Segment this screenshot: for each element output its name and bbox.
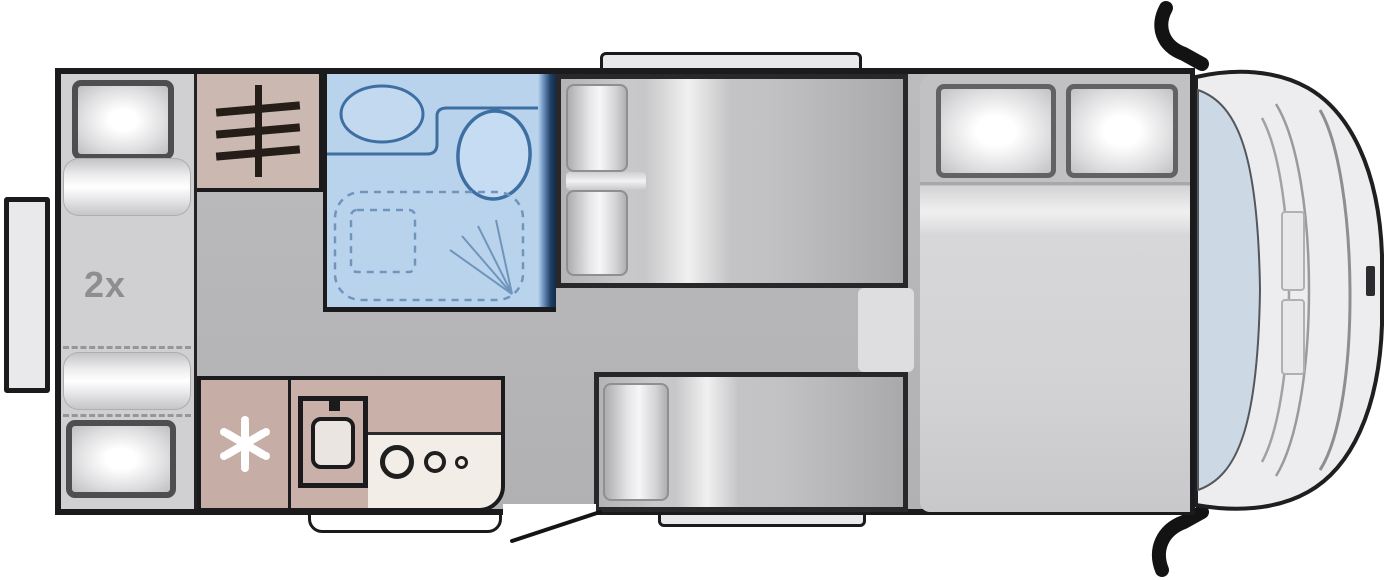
bathroom-fixtures (327, 74, 556, 307)
fold-line (63, 346, 191, 349)
rear-cushion-bottom (63, 352, 191, 410)
double-bed (920, 74, 1190, 512)
bench-surface (675, 377, 739, 507)
mattress-highlight (920, 190, 1190, 234)
entry-door-opening (503, 504, 596, 518)
bathroom (323, 74, 556, 312)
doorway-floor-light (858, 288, 914, 372)
hanger-rail-icon (212, 83, 304, 179)
shower-seat (351, 210, 415, 272)
side-bench (594, 372, 908, 512)
faucet (329, 397, 340, 411)
cab-mirror-bottom-icon (1159, 512, 1202, 570)
rear-pillow-top (72, 80, 174, 160)
cab-mirror-top-icon (1161, 8, 1202, 64)
snowflake-icon (215, 414, 275, 474)
kitchen-sink-unit (298, 396, 368, 488)
wardrobe (197, 74, 323, 192)
rear-window (4, 197, 50, 393)
shower-spray-icon (450, 220, 512, 294)
berth-count-label: 2x (55, 264, 155, 306)
bed-pillow-right (1066, 84, 1178, 178)
motorhome-floorplan: 2x (0, 0, 1388, 580)
cab-front-badge (1366, 266, 1375, 296)
sink-bowl (311, 417, 355, 469)
rear-pillow-bottom (66, 420, 176, 498)
washbasin (341, 86, 423, 142)
toilet (455, 109, 533, 202)
rear-cushion-top (63, 158, 191, 216)
shower-tray (335, 192, 523, 300)
kitchen (197, 376, 505, 512)
dinette-table-surface (645, 79, 731, 283)
bench-cushion (603, 383, 669, 501)
burner-large (380, 445, 414, 479)
burner-medium (424, 451, 446, 473)
cab-hood-vent-1 (1282, 212, 1304, 290)
fold-line (63, 414, 191, 417)
cab-hood-vent-2 (1282, 300, 1304, 374)
dinette-cushion (566, 190, 628, 276)
mattress-seam (920, 182, 1190, 185)
burner-small (455, 456, 468, 469)
bed-pillow-left (936, 84, 1056, 178)
hob (368, 432, 501, 508)
dinette-armrest (566, 172, 646, 190)
bathroom-sliding-door (538, 74, 556, 307)
fridge (201, 380, 291, 508)
dinette-cushion (566, 84, 628, 172)
dinette (556, 74, 908, 288)
